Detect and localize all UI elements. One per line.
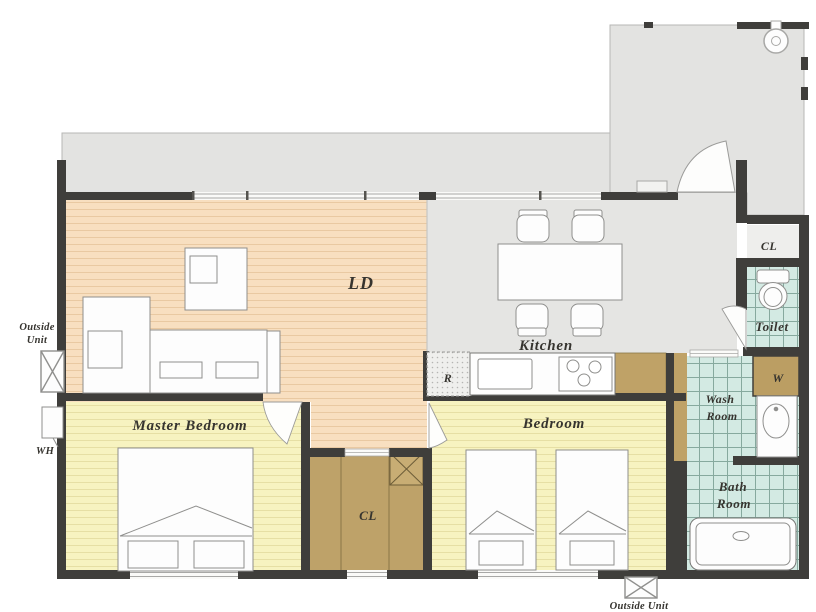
pillow <box>128 541 178 568</box>
label-bathroom-2: Room <box>716 496 751 511</box>
kitchen-sink <box>478 359 532 389</box>
label-outside-unit-left-1: Outside <box>19 322 54 333</box>
label-master-bedroom: Master Bedroom <box>132 418 248 434</box>
pillow <box>194 541 244 568</box>
floor-plan: LD Kitchen Master Bedroom Bedroom CL CL … <box>0 0 816 612</box>
closet-window <box>347 570 387 579</box>
stove-icon <box>559 357 612 391</box>
closet-sliding-door <box>345 449 389 456</box>
label-bathroom-1: Bath <box>718 479 747 494</box>
wall-entry-vertical <box>736 160 747 223</box>
pillow <box>570 541 614 565</box>
pillow <box>479 541 523 565</box>
storage-strip <box>674 353 687 461</box>
label-outside-unit-left-2: Unit <box>27 335 48 346</box>
floor-plan-svg: LD Kitchen Master Bedroom Bedroom CL CL … <box>0 0 816 612</box>
dining-chair <box>571 304 603 336</box>
entry-step <box>637 181 667 192</box>
label-bedroom: Bedroom <box>522 416 585 432</box>
wall-kitchen-top <box>601 192 678 200</box>
outside-unit-bottom-icon <box>625 577 657 598</box>
ld-balcony-window <box>192 191 419 200</box>
label-refrigerator: R <box>443 371 452 385</box>
single-bed <box>556 450 628 570</box>
dining-chair <box>572 210 604 242</box>
coffee-table <box>185 248 247 310</box>
washroom-sliding-door <box>690 350 738 357</box>
washbasin <box>757 396 797 457</box>
kitchen-cabinet <box>615 353 666 396</box>
master-bed <box>118 448 253 571</box>
wall-master-top <box>57 393 263 401</box>
label-water-heater: WH <box>36 446 55 457</box>
wall-closet-top-right <box>389 448 432 457</box>
bedroom-window <box>478 570 598 579</box>
balcony-floor <box>62 133 610 193</box>
closet-crossbrace-icon <box>390 453 423 485</box>
label-kitchen: Kitchen <box>518 338 573 354</box>
kitchen-counter <box>470 353 615 395</box>
label-toilet: Toilet <box>755 319 788 334</box>
dining-chair <box>516 304 548 336</box>
label-closet-center: CL <box>359 508 377 523</box>
wall-right-outer <box>799 215 809 579</box>
wall-closet-top-left <box>301 448 345 457</box>
wall-porch-stub-2 <box>801 87 808 100</box>
wall-closet-bedroom <box>423 448 432 577</box>
dining-chair <box>517 210 549 242</box>
label-outside-unit-bottom: Outside Unit <box>610 601 670 612</box>
outside-unit-left-icon <box>41 351 64 392</box>
wall-toilet-left <box>736 258 747 310</box>
wall-porch-stub-1 <box>801 57 808 70</box>
wall-master-closet <box>301 402 310 577</box>
label-closet-entry: CL <box>761 239 777 253</box>
bathtub <box>690 518 796 570</box>
dining-table <box>498 244 622 300</box>
kitchen-window <box>436 191 601 200</box>
label-ld: LD <box>347 273 374 293</box>
wall-ld-top <box>62 192 192 200</box>
wall-porch-tick <box>644 22 653 28</box>
wall-toilet-bottom <box>743 347 799 356</box>
wall-mid-stub <box>419 192 436 200</box>
toilet-icon <box>757 270 789 310</box>
wall-pipe-stub-1 <box>666 512 683 523</box>
label-washroom-1: Wash <box>706 392 735 406</box>
label-washroom-2: Room <box>706 409 738 423</box>
label-washer: W <box>772 371 784 385</box>
wall-pipe-stub-2 <box>666 539 683 550</box>
wall-entry-horizontal <box>747 215 799 224</box>
single-bed <box>466 450 536 570</box>
